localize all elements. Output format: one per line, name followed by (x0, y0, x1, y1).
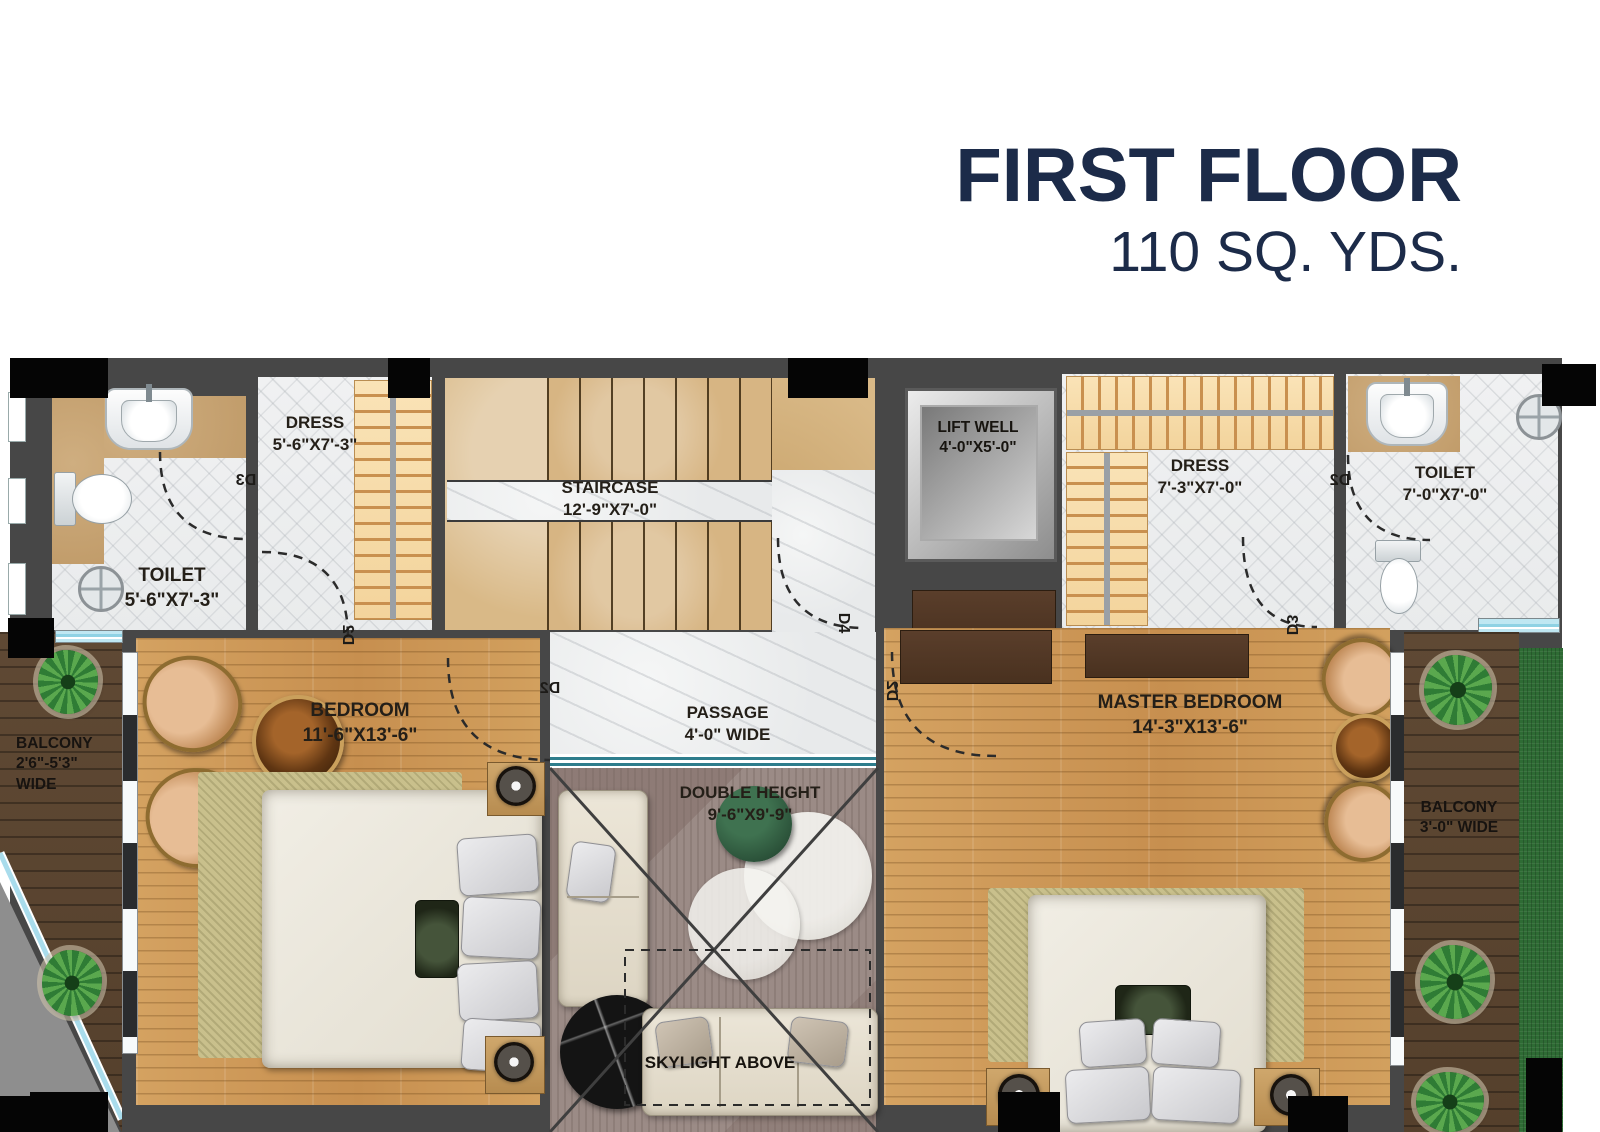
door-tag: D3 (1282, 610, 1300, 640)
door-tag: D4 (834, 608, 852, 638)
door-tag: D2 (1322, 472, 1358, 490)
door-arc (262, 552, 348, 638)
door-tag: D2 (532, 680, 568, 698)
floor-plan-page: FIRST FLOOR 110 SQ. YDS. TOILET 5'-6"X7'… (0, 0, 1600, 1132)
door-tag: D2 (338, 620, 356, 650)
door-tag: D2 (882, 674, 900, 708)
door-arc (448, 658, 550, 760)
door-arc (892, 652, 996, 756)
page-subtitle: 110 SQ. YDS. (950, 220, 1462, 286)
door-tag: D3 (228, 472, 264, 490)
page-title: FIRST FLOOR (950, 138, 1462, 214)
door-arc (1243, 537, 1317, 627)
door-arc (160, 452, 247, 539)
title-block: FIRST FLOOR 110 SQ. YDS. (950, 138, 1462, 286)
door-arc (1348, 455, 1430, 540)
